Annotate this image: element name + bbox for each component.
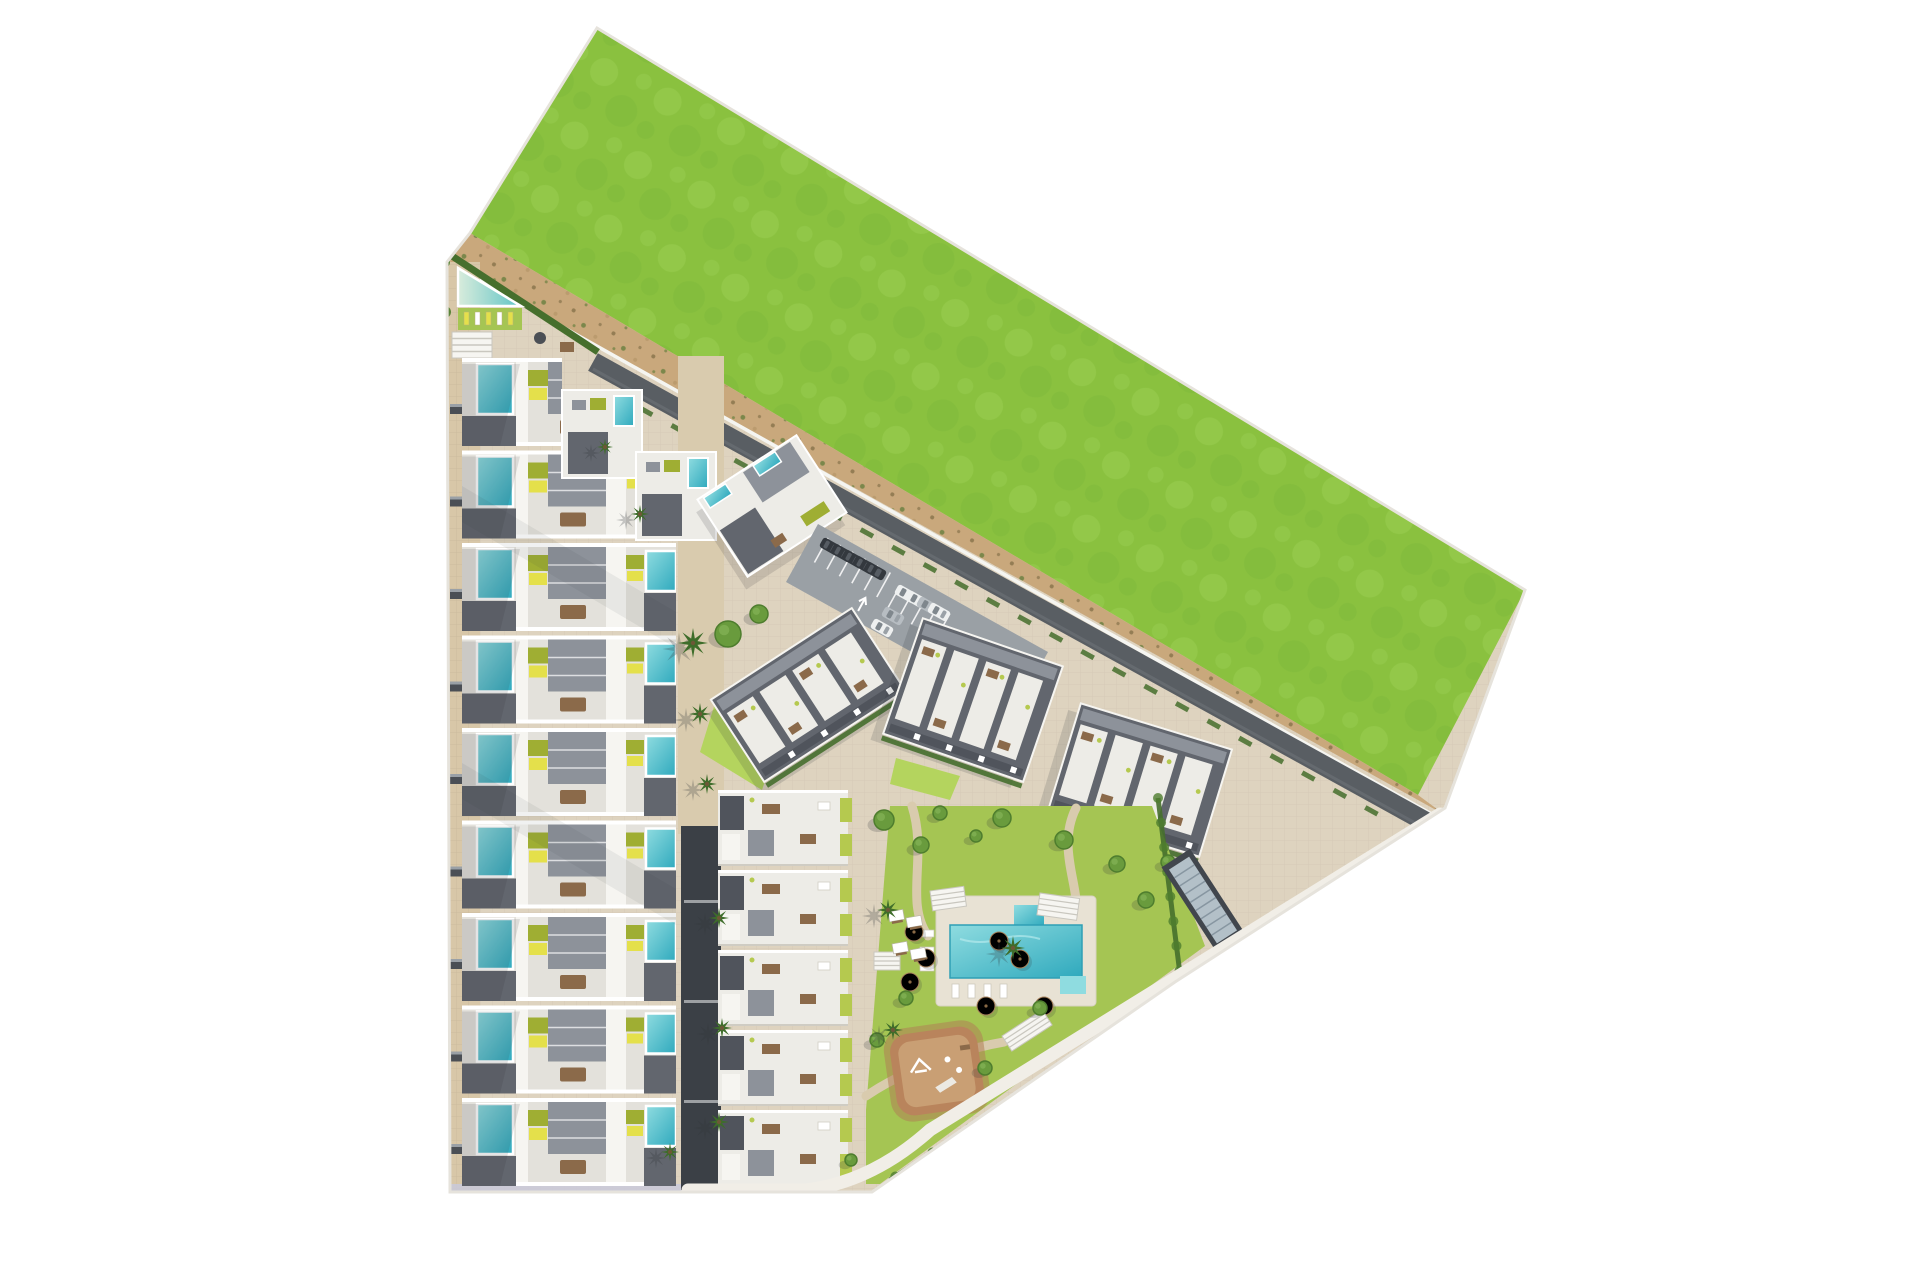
tree-shadow [944,1150,959,1160]
pergola [452,332,492,358]
terrace-table [762,884,780,894]
terrace-table [560,1068,586,1082]
sun-lounger [529,851,547,863]
sun-lounger [529,1036,547,1048]
terrace-table [800,994,816,1004]
tree-shadow [1066,1059,1083,1070]
hedge-strip [840,914,852,936]
planter [528,1018,548,1034]
roof-section [748,1150,774,1176]
palm-shadow [663,633,696,666]
terrace-table [800,914,816,924]
roof-section [748,1070,774,1096]
roof-section [748,830,774,856]
utility-box [450,774,464,784]
planter [626,833,644,847]
sun-lounger [529,943,547,955]
bush [1165,892,1175,902]
bush [1168,916,1178,926]
tree-shadow [1108,1027,1125,1038]
hedge-strip [840,798,852,822]
bush [1076,1051,1086,1061]
tree-shadow [1029,1090,1044,1100]
stairwell [722,994,740,1020]
terrace-table [762,1124,780,1134]
service-alley [681,826,721,1190]
planter [626,1018,644,1032]
terrace-table [800,1154,816,1164]
bush [439,306,451,318]
rowhouse-step-unit [562,390,642,478]
utility-box [450,1144,464,1154]
terrace-table [762,1044,780,1054]
roof-section [644,778,678,816]
planter [626,648,644,662]
roof-section [748,990,774,1016]
roof-section [644,686,678,724]
bush [1113,1027,1123,1037]
patio-table [534,332,546,344]
sun-lounger [1000,984,1007,998]
private-pool [646,551,676,591]
hedge-strip [840,834,852,856]
sun-lounger [529,1128,547,1140]
hedge-strip [840,994,852,1016]
terrace-table [800,834,816,844]
pool-step [1060,976,1086,994]
roof-section [548,732,606,784]
private-pool [646,829,676,869]
sun-lounger [952,984,959,998]
bush-tree [944,1143,964,1160]
roof-section [720,956,744,990]
terrace-table [560,605,586,619]
sun-lounger [627,571,643,581]
potted-plant [750,958,755,963]
private-pool [646,1106,676,1146]
terrace-table [560,790,586,804]
utility-box [450,959,464,969]
planter [626,925,644,939]
sun-lounger [968,984,975,998]
hedge-strip [840,1038,852,1062]
rowhouse-terrace-a [462,913,678,1001]
sun-lounger [818,882,830,890]
terrace-table [762,804,780,814]
bush [1150,1003,1160,1013]
planter [590,398,606,410]
bush [1153,793,1163,803]
planter [626,1110,644,1124]
planter [528,1110,548,1126]
rowhouse-terrace-b [718,790,852,866]
rowhouse-terrace-a [462,1006,678,1094]
sun-lounger [497,312,502,325]
tree-shadow [989,1120,1004,1130]
potted-plant [750,798,755,803]
roof-section [642,494,682,536]
terrace-table [560,513,586,527]
rowhouse-terrace-a [462,636,678,724]
bush [1171,941,1181,951]
sun-lounger [529,666,547,678]
private-pool [646,736,676,776]
stairwell [722,1074,740,1100]
terrace-table [560,883,586,897]
roof-section [548,1010,606,1062]
rowhouse-terrace-b [718,950,852,1026]
sun-lounger [486,312,491,325]
alley-crossing [684,1000,718,1003]
sun-lounger [529,758,547,770]
potted-plant [750,878,755,883]
sun-lounger [529,388,547,400]
planter [626,740,644,754]
utility-box [450,404,464,414]
sun-lounger [818,802,830,810]
private-pool [688,458,708,488]
planter [528,463,548,479]
hedge-strip [840,1118,852,1142]
sun-lounger [818,1042,830,1050]
terrace-table [560,698,586,712]
utility-box [450,589,464,599]
roof-section [720,1036,744,1070]
roof-section [548,917,606,969]
potted-plant [750,1118,755,1123]
roof-section [748,910,774,936]
planter [528,648,548,664]
terrace-table [560,1160,586,1174]
planter [664,460,680,472]
sun-lounger [475,312,480,325]
sun-lounger [818,962,830,970]
sun-lounger [508,312,513,325]
roof-section [548,1102,606,1154]
utility-box [450,497,464,507]
stairwell [722,1154,740,1180]
hedge-strip [840,878,852,902]
sun-lounger [627,941,643,951]
sun-lounger [529,481,547,493]
sun-lounger [984,984,991,998]
alley-crossing [684,900,718,903]
sun-lounger [627,1034,643,1044]
stairwell [722,834,740,860]
rowhouse-terrace-b [718,870,852,946]
rowhouse-terrace-b [718,1030,852,1106]
planter [528,740,548,756]
bush [435,280,447,292]
planter [528,370,548,386]
sun-lounger [627,756,643,766]
private-pool [646,1014,676,1054]
roof-section [548,640,606,692]
utility-box [450,682,464,692]
potted-plant [750,1038,755,1043]
site-plan-svg [0,0,1920,1280]
bush [1159,842,1169,852]
sun-lounger [529,573,547,585]
palm-shadow [582,444,600,462]
tree-shadow [902,1175,915,1183]
private-pool [646,921,676,961]
utility-box [450,867,464,877]
rowhouse-terrace-b [718,1110,852,1186]
utility-box [450,1052,464,1062]
roof-section [644,1056,678,1094]
sun-lounger [627,664,643,674]
planter [528,925,548,941]
site-plan-render [0,0,1920,1280]
palm-shadow [616,510,636,530]
sun-lounger [627,849,643,859]
terrace-table [800,1074,816,1084]
patio-table [560,342,574,352]
roof-section [644,963,678,1001]
sun-lounger [818,1122,830,1130]
private-pool [614,396,634,426]
pergola [930,886,966,911]
roof-section [720,796,744,830]
terrace-table [560,975,586,989]
development-site [435,28,1540,1280]
alley-crossing [684,1100,718,1103]
hedge-strip [840,1074,852,1096]
roof-section [720,876,744,910]
sun-lounger [464,312,469,325]
bush-tree [989,1113,1009,1130]
terrace-table [762,964,780,974]
bush [1156,818,1166,828]
planter [626,555,644,569]
rowhouse-terrace-a [462,1098,678,1186]
palm-shadow [646,1148,666,1168]
hedge-strip [840,958,852,982]
bush-tree [1029,1083,1049,1100]
sun-lounger [627,1126,643,1136]
